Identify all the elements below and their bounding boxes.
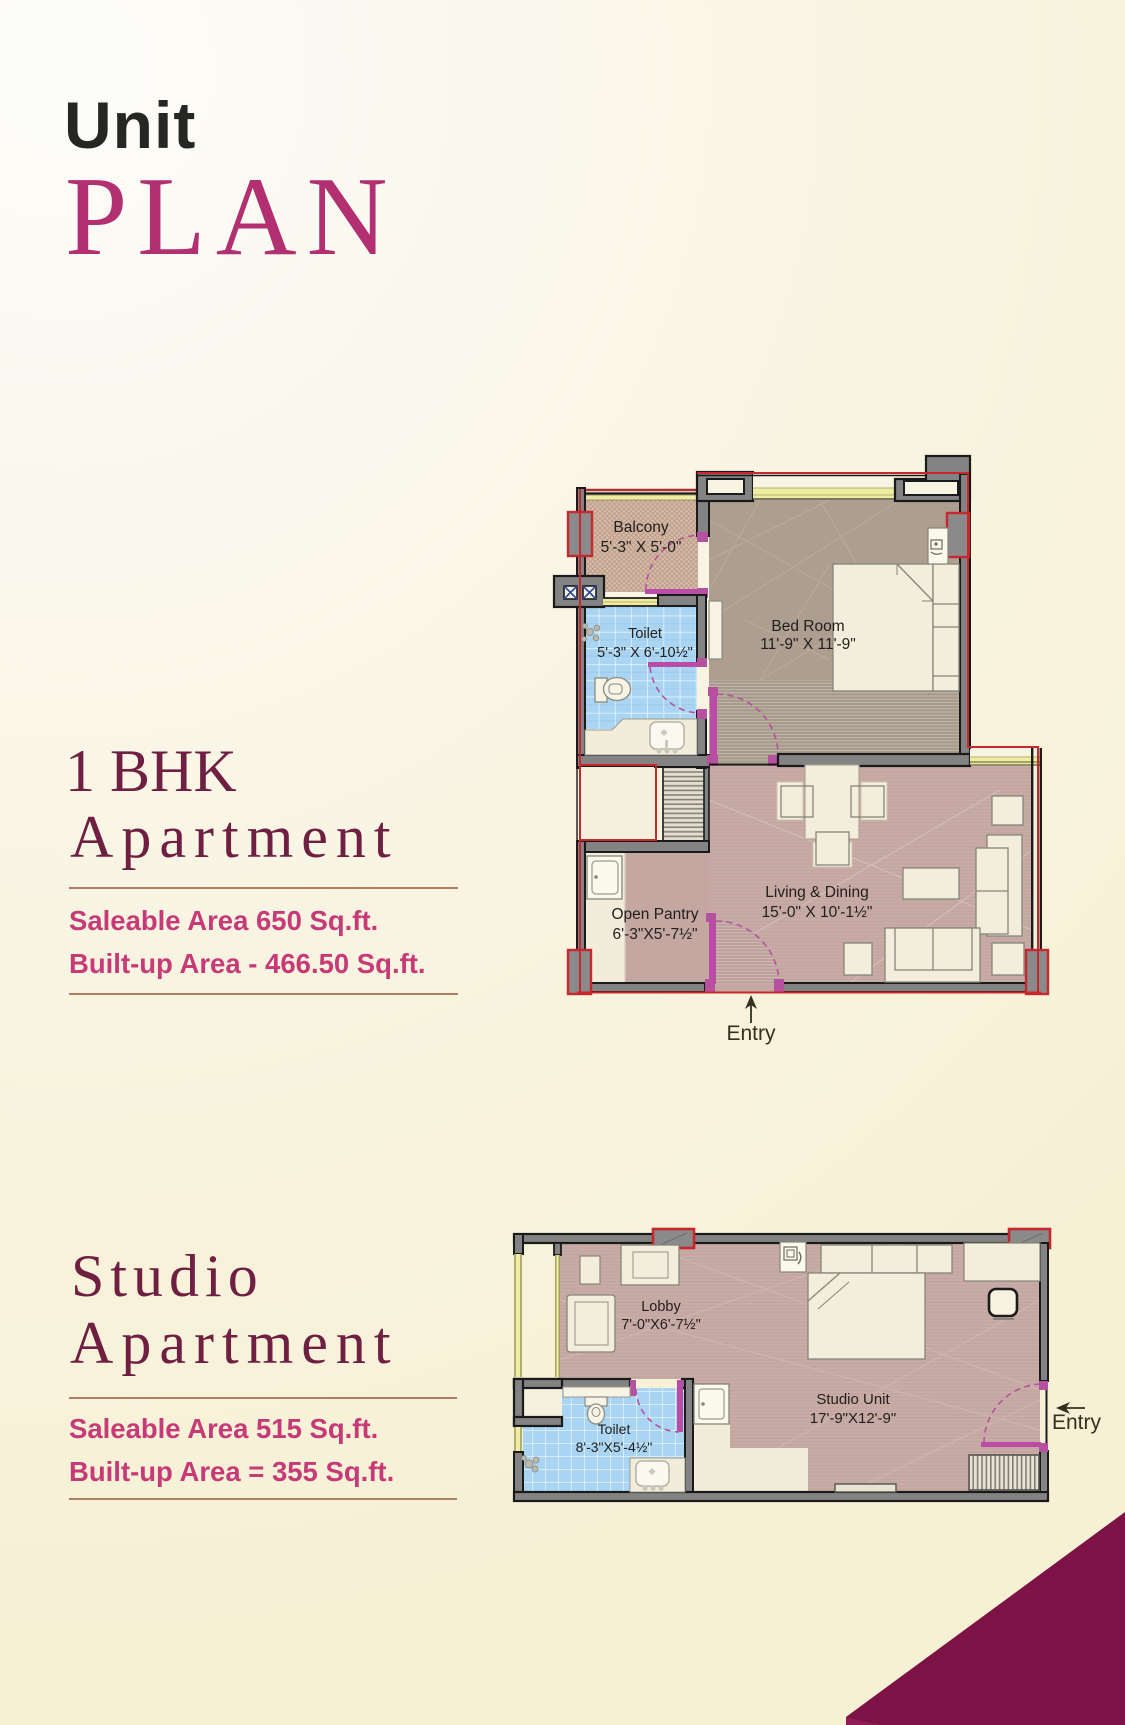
svg-text:7'-0"X6'-7½": 7'-0"X6'-7½" (621, 1317, 701, 1333)
svg-text:Balcony: Balcony (613, 519, 668, 536)
svg-text:Entry: Entry (1052, 1411, 1102, 1434)
svg-text:Open Pantry: Open Pantry (611, 906, 698, 923)
svg-text:Toilet: Toilet (598, 1421, 631, 1437)
svg-text:5'-3" X 5'-0": 5'-3" X 5'-0" (601, 539, 682, 556)
svg-text:17'-9"X12'-9": 17'-9"X12'-9" (810, 1410, 896, 1427)
svg-text:Living & Dining: Living & Dining (765, 884, 868, 901)
svg-text:Studio Unit: Studio Unit (816, 1391, 890, 1408)
svg-text:6'-3"X5'-7½": 6'-3"X5'-7½" (613, 926, 698, 943)
svg-text:Entry: Entry (726, 1022, 776, 1045)
svg-text:Lobby: Lobby (641, 1299, 681, 1315)
svg-text:5'-3" X 6'-10½": 5'-3" X 6'-10½" (597, 645, 693, 661)
svg-text:Bed Room: Bed Room (771, 618, 844, 635)
svg-text:8'-3"X5'-4½": 8'-3"X5'-4½" (576, 1439, 653, 1455)
svg-text:Toilet: Toilet (628, 626, 662, 642)
svg-text:15'-0" X 10'-1½": 15'-0" X 10'-1½" (762, 904, 873, 921)
svg-text:11'-9" X 11'-9": 11'-9" X 11'-9" (760, 636, 856, 653)
